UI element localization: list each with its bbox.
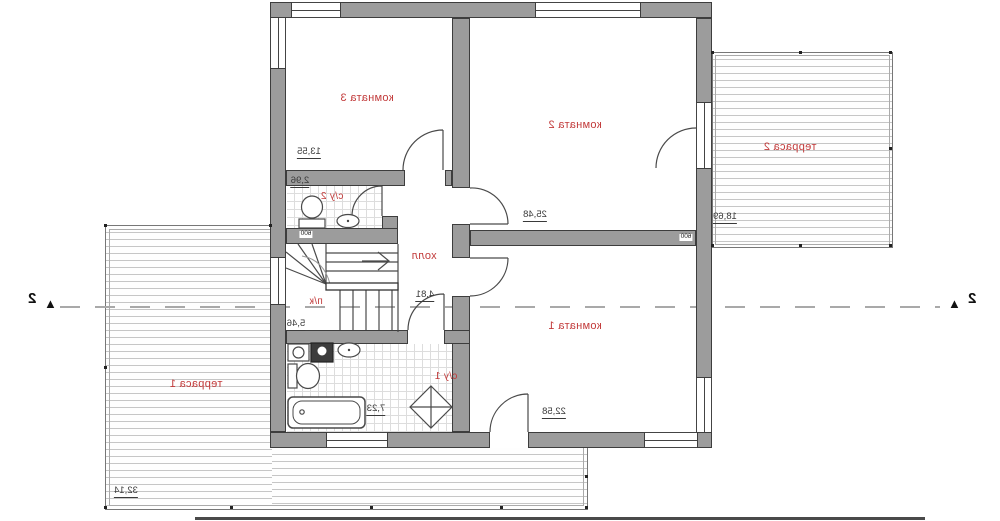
scan-edge-artifact: [195, 517, 925, 520]
room-label-room2: комната 2: [548, 119, 601, 131]
room-label-room1: комната 1: [548, 320, 601, 332]
room-area-hall: 4,81: [416, 290, 435, 302]
toilet-tank: [299, 219, 325, 228]
room-area-bath1: 7,23: [367, 404, 386, 416]
doors-stairs-fixtures-layer: [0, 0, 1000, 521]
room-label-stairs: п/к: [309, 296, 322, 307]
room-area-stairs: 5,46: [287, 319, 306, 331]
door-arc: [490, 394, 528, 432]
room-area-room1: 22,58: [542, 407, 566, 419]
stairs-landing-rail: [326, 283, 398, 290]
room-area-terrace2: 18,69: [713, 212, 737, 224]
floor-plan: ▲ 2 ▲ 2: [0, 0, 1000, 521]
dim-opening-bath2: 600: [300, 231, 313, 238]
toilet-bowl: [297, 364, 320, 389]
railing-posts: [104, 51, 892, 509]
room-label-terrace2: терраса 2: [764, 141, 817, 153]
door-arc: [470, 188, 508, 224]
door-arc: [656, 128, 696, 168]
room-label-bath1: с/у 1: [435, 371, 458, 382]
room-area-bath2: 2,96: [291, 176, 310, 188]
toilet-tank: [288, 364, 297, 388]
door-arc: [403, 130, 443, 170]
dim-opening-room2: 600: [680, 234, 693, 241]
room-label-room3: комната 3: [340, 92, 393, 104]
stairs-direction-arrow: [362, 252, 389, 270]
door-arc: [352, 186, 382, 216]
room-area-terrace1: 32,14: [114, 486, 138, 498]
room-label-bath2: с/у 2: [321, 191, 344, 202]
room-area-room2: 25,48: [523, 210, 547, 222]
room-label-terrace1: терраса 1: [170, 378, 223, 390]
room-label-hall: холл: [411, 250, 436, 262]
door-arc: [470, 258, 508, 296]
room-area-room3: 13,55: [297, 147, 321, 159]
